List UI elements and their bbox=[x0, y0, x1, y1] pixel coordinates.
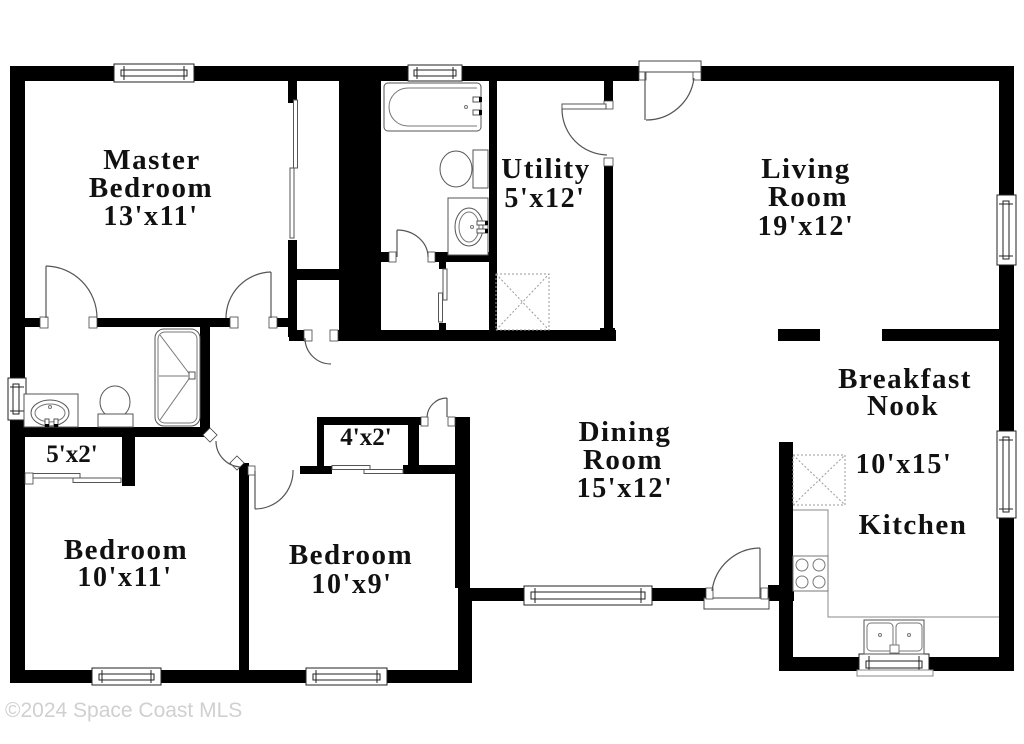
svg-text:©2024 Space Coast MLS: ©2024 Space Coast MLS bbox=[5, 699, 242, 722]
svg-text:4'x2': 4'x2' bbox=[340, 424, 391, 451]
svg-text:10'x15': 10'x15' bbox=[856, 449, 953, 480]
svg-text:10'x11': 10'x11' bbox=[77, 562, 172, 593]
svg-text:15'x12': 15'x12' bbox=[577, 473, 674, 504]
svg-text:Kitchen: Kitchen bbox=[859, 509, 968, 541]
svg-text:Room: Room bbox=[768, 181, 848, 213]
svg-text:Utility: Utility bbox=[501, 153, 590, 185]
svg-text:19'x12': 19'x12' bbox=[758, 211, 855, 242]
svg-text:Room: Room bbox=[583, 444, 663, 476]
svg-text:5'x2': 5'x2' bbox=[46, 441, 97, 468]
svg-text:10'x9': 10'x9' bbox=[311, 569, 392, 600]
svg-text:Nook: Nook bbox=[867, 390, 939, 422]
svg-text:5'x12': 5'x12' bbox=[504, 183, 585, 214]
svg-text:Bedroom: Bedroom bbox=[89, 172, 213, 204]
svg-text:13'x11': 13'x11' bbox=[103, 201, 198, 232]
svg-text:Bedroom: Bedroom bbox=[289, 539, 413, 571]
